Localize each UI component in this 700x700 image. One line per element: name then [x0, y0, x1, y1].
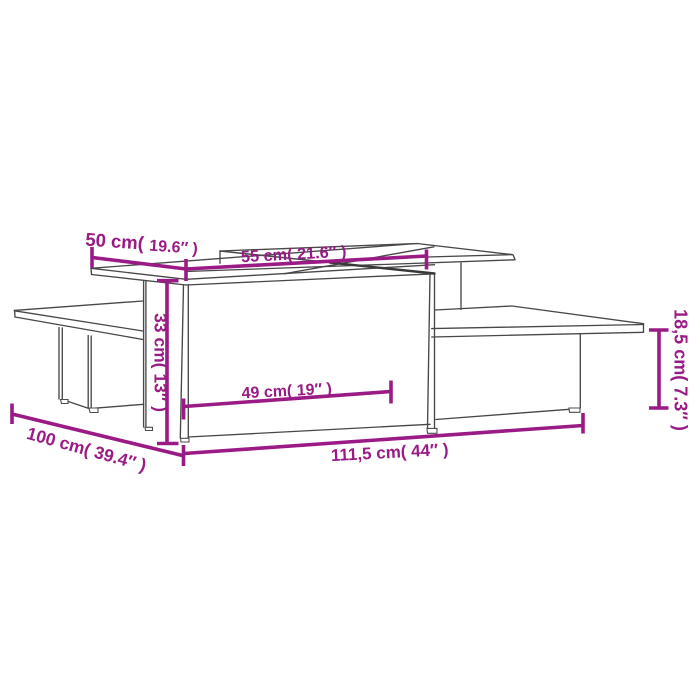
svg-text:19.6″ ): 19.6″ ) — [149, 238, 199, 258]
svg-text:18,5 cm( 7.3″ ): 18,5 cm( 7.3″ ) — [670, 309, 690, 431]
svg-text:49 cm( 19″ ): 49 cm( 19″ ) — [241, 381, 332, 403]
svg-text:50 cm(: 50 cm( — [85, 229, 146, 254]
svg-text:33 cm( 13″ ): 33 cm( 13″ ) — [151, 313, 171, 412]
